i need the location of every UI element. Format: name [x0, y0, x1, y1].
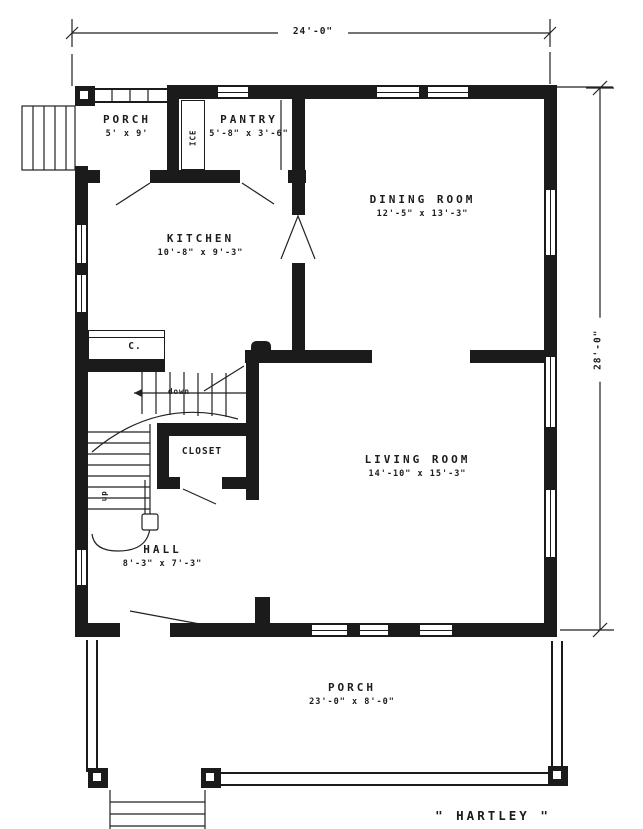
- wall-closet-bottom-a: [157, 477, 180, 489]
- room-size: 23'-0" x 8'-0": [262, 698, 442, 707]
- window: [312, 623, 347, 637]
- wall-passage-right: [246, 363, 259, 500]
- wall-living-dining-left: [245, 350, 372, 363]
- dimension-top: 24'-0": [278, 27, 348, 37]
- wall-below-cabinet: [75, 360, 165, 372]
- room-name: CLOSET: [158, 447, 246, 457]
- room-size: 5'-8" x 3'-6": [203, 130, 295, 139]
- room-name: LIVING ROOM: [325, 454, 510, 465]
- room-label-front-porch: PORCH 23'-0" x 8'-0": [262, 682, 442, 707]
- window: [428, 85, 468, 99]
- wall-hall-living-stub: [255, 597, 270, 623]
- label-stairs-down: down: [148, 381, 210, 397]
- newel-post: [142, 514, 158, 530]
- door-swing-closet: [183, 489, 216, 504]
- porch-rail-left: [86, 640, 98, 772]
- wall-kitchen-dining-lower: [292, 263, 305, 363]
- front-steps: [110, 790, 205, 829]
- window: [377, 85, 419, 99]
- porch-corner-post-top: [75, 86, 95, 106]
- porch-rail-right: [551, 641, 563, 768]
- door-swing-passage: [204, 366, 244, 391]
- window: [544, 190, 557, 255]
- window: [544, 490, 557, 557]
- label-china-closet: C.: [115, 342, 155, 352]
- room-size: 5' x 9': [86, 130, 168, 139]
- window: [420, 623, 452, 637]
- wall-closet-top: [157, 423, 246, 436]
- porch-post-middle: [201, 768, 221, 788]
- wall-closet-left: [157, 436, 169, 477]
- room-size: 8'-3" x 7'-3": [105, 560, 220, 569]
- room-name: DINING ROOM: [335, 194, 510, 205]
- window: [360, 623, 388, 637]
- room-name: KITCHEN: [118, 233, 283, 244]
- room-name: PORCH: [262, 682, 442, 693]
- stair-handrail: [145, 424, 150, 518]
- label-stairs-up: up: [96, 483, 112, 509]
- wall-kitchen-top-a: [88, 170, 100, 183]
- plan-title: " HARTLEY ": [408, 810, 578, 823]
- window: [75, 550, 88, 585]
- window: [75, 275, 88, 312]
- room-label-hall: HALL 8'-3" x 7'-3": [105, 544, 220, 569]
- dimension-line-right: [552, 81, 614, 637]
- dimension-right: 28'-0": [593, 318, 603, 382]
- room-name: PANTRY: [203, 114, 295, 125]
- room-size: 12'-5" x 13'-3": [335, 210, 510, 219]
- wall-porch-pantry: [167, 99, 179, 170]
- room-size: 14'-10" x 15'-3": [325, 470, 510, 479]
- wall-kitchen-top-b: [150, 170, 240, 183]
- door-swing-porch-kitchen: [116, 183, 150, 205]
- door-swing-pantry-kitchen: [242, 183, 274, 204]
- front-door-opening: [120, 623, 170, 637]
- down-arrowhead: [134, 389, 142, 397]
- room-label-closet: CLOSET: [158, 447, 246, 457]
- room-label-dining: DINING ROOM 12'-5" x 13'-3": [335, 194, 510, 219]
- porch-rail-bottom: [221, 772, 551, 786]
- label-ice: ICE: [182, 118, 204, 158]
- wall-closet-bottom-b: [222, 477, 246, 489]
- room-label-pantry: PANTRY 5'-8" x 3'-6": [203, 114, 295, 139]
- room-name: HALL: [105, 544, 220, 555]
- butler-door-swing: [281, 216, 315, 259]
- window: [218, 85, 248, 99]
- room-label-back-porch: PORCH 5' x 9': [86, 114, 168, 139]
- window: [544, 357, 557, 427]
- room-label-living: LIVING ROOM 14'-10" x 15'-3": [325, 454, 510, 479]
- wall-living-dining-right: [470, 350, 544, 363]
- window: [75, 225, 88, 263]
- floor-plan: PORCH 5' x 9' PANTRY 5'-8" x 3'-6" DININ…: [0, 0, 643, 829]
- room-name: PORCH: [86, 114, 168, 125]
- back-stairs: [22, 106, 75, 170]
- room-size: 10'-8" x 9'-3": [118, 249, 283, 258]
- porch-post-left: [88, 768, 108, 788]
- back-porch-rail: [95, 88, 167, 103]
- porch-post-right: [548, 766, 568, 786]
- room-label-kitchen: KITCHEN 10'-8" x 9'-3": [118, 233, 283, 258]
